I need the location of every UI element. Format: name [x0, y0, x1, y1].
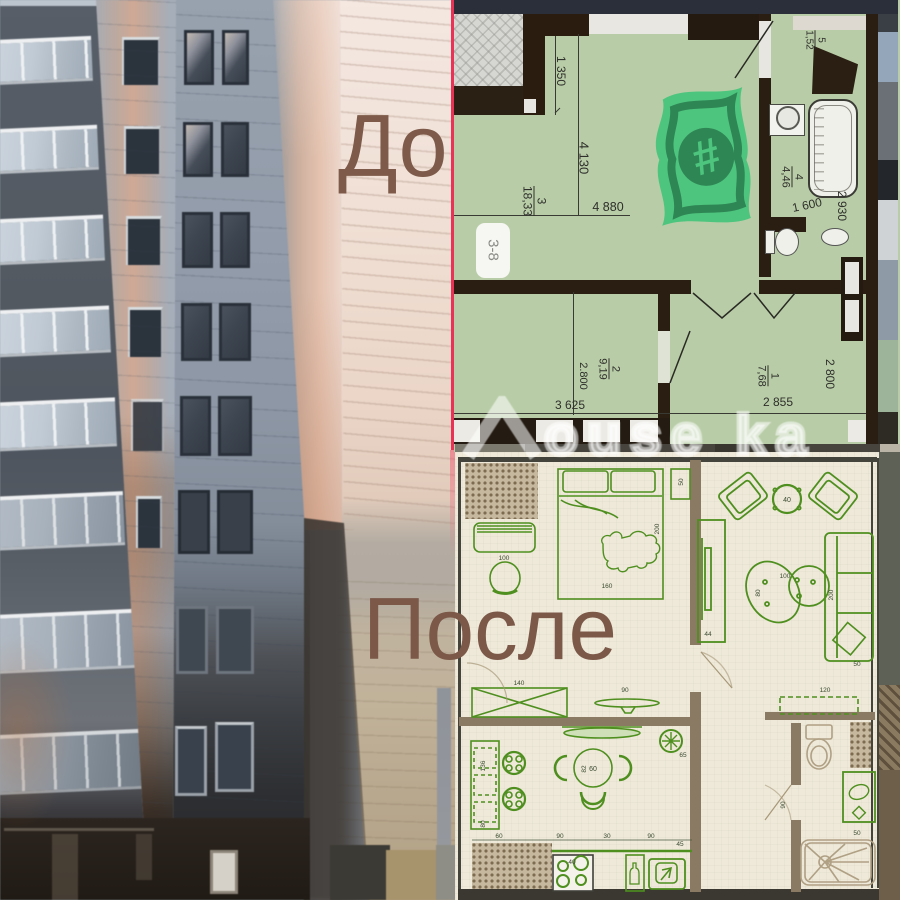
svg-text:80: 80	[755, 589, 762, 597]
svg-text:140: 140	[514, 680, 525, 687]
svg-text:200: 200	[654, 523, 661, 534]
svg-text:136: 136	[480, 760, 487, 771]
svg-text:90: 90	[780, 801, 787, 809]
svg-text:44: 44	[704, 631, 712, 638]
svg-text:40: 40	[783, 497, 791, 504]
svg-text:ouse ka: ouse ka	[544, 403, 816, 460]
svg-text:50: 50	[853, 661, 861, 668]
svg-text:82: 82	[581, 765, 588, 773]
svg-text:80: 80	[480, 820, 487, 828]
svg-text:30: 30	[603, 833, 611, 840]
svg-text:100: 100	[780, 573, 791, 580]
svg-text:40: 40	[568, 859, 576, 866]
svg-text:60: 60	[495, 833, 503, 840]
svg-text:120: 120	[820, 687, 831, 694]
svg-text:50: 50	[678, 478, 685, 486]
svg-text:90: 90	[621, 687, 629, 694]
svg-text:65: 65	[679, 752, 687, 759]
svg-text:50: 50	[853, 830, 861, 837]
svg-text:45: 45	[676, 841, 684, 848]
svg-text:100: 100	[499, 555, 510, 562]
svg-text:200: 200	[828, 589, 835, 600]
svg-text:90: 90	[556, 833, 564, 840]
svg-text:90: 90	[647, 833, 655, 840]
svg-text:60: 60	[589, 766, 597, 773]
